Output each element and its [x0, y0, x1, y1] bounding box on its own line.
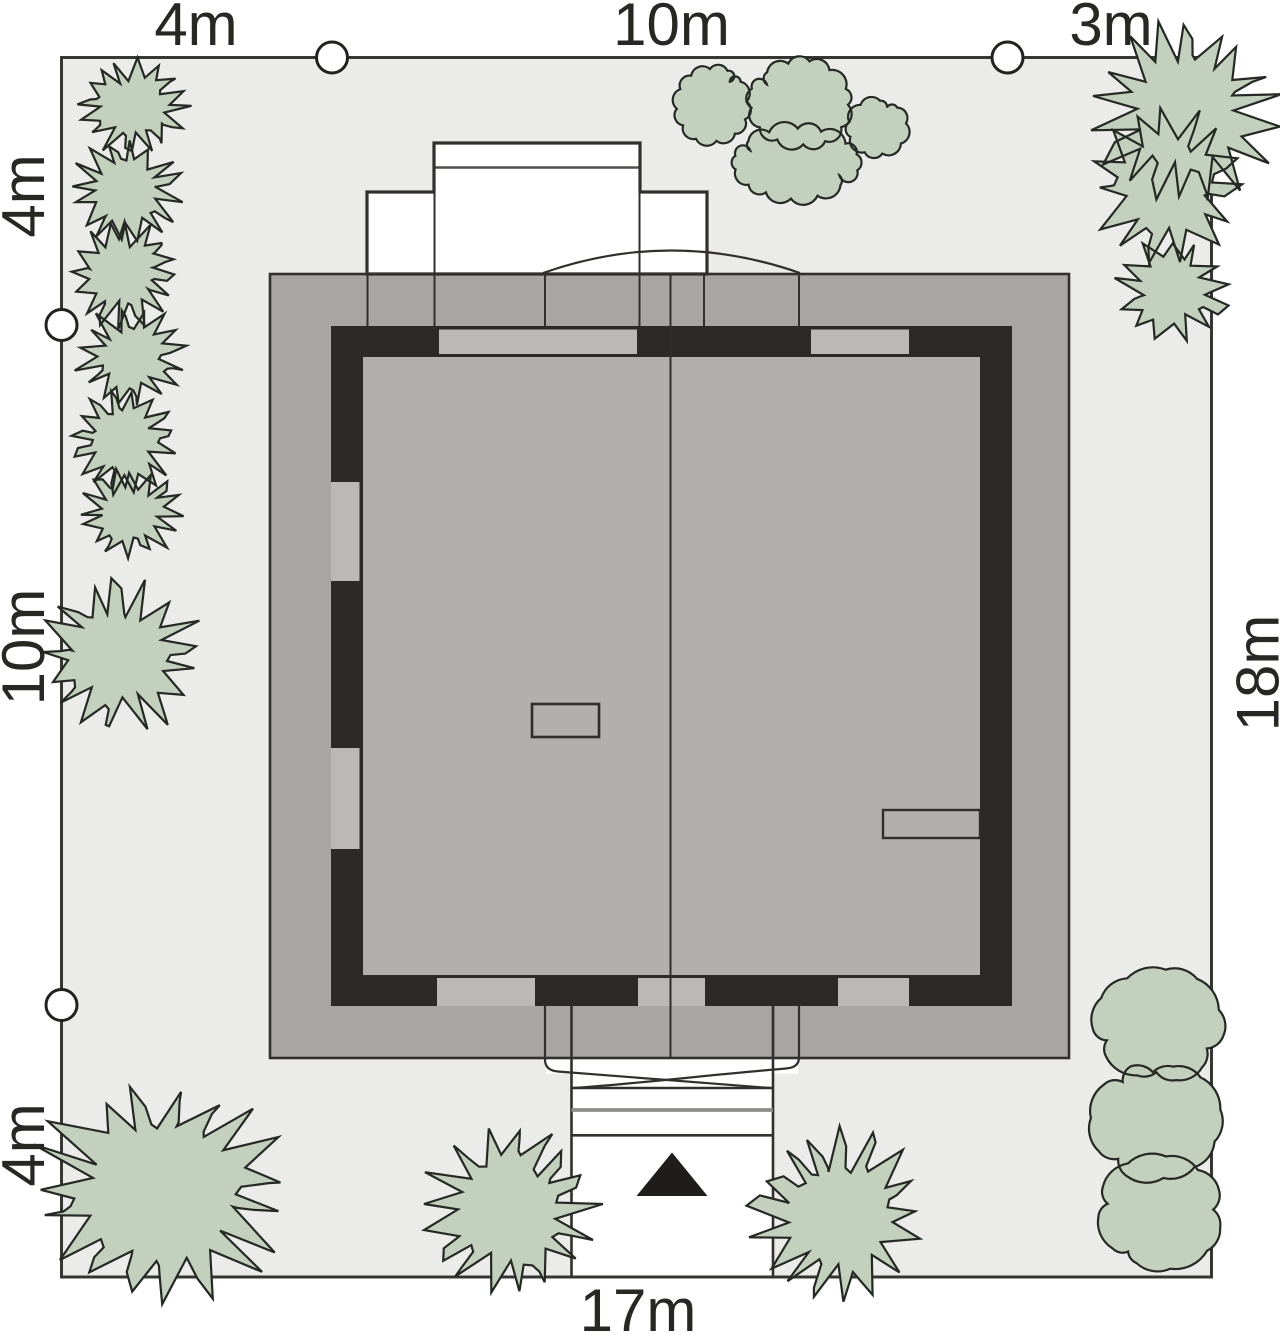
- svg-text:4m: 4m: [0, 1103, 57, 1186]
- svg-text:10m: 10m: [613, 0, 730, 58]
- svg-text:10m: 10m: [0, 589, 57, 706]
- svg-text:18m: 18m: [1225, 615, 1280, 732]
- svg-text:4m: 4m: [0, 154, 57, 237]
- svg-text:3m: 3m: [1069, 0, 1152, 58]
- svg-text:4m: 4m: [154, 0, 237, 58]
- svg-text:17m: 17m: [580, 1277, 697, 1335]
